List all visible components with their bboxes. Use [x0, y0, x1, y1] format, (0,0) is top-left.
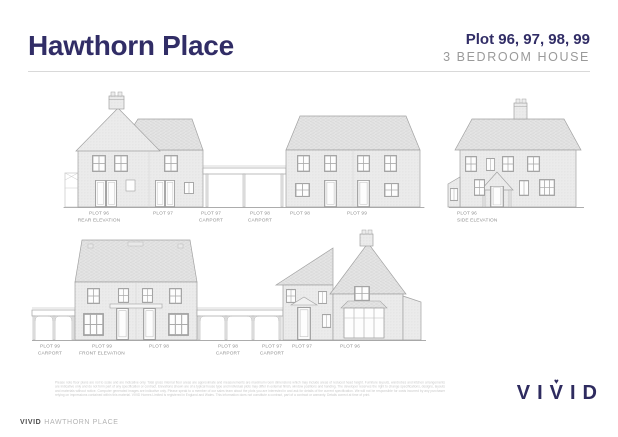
label-plot96-side: PLOT 96SIDE ELEVATION [457, 210, 557, 224]
front-elevation-plots-96-99 [32, 230, 426, 341]
vivid-logo: V I ♥V I D [517, 383, 597, 403]
footer-brand: VIVID [20, 419, 41, 426]
rear-elevation-plots-96-99 [64, 92, 424, 208]
logo-letter-with-heart: ♥V [550, 383, 563, 403]
logo-letter: I [570, 383, 576, 403]
footer-project: HAWTHORN PLACE [44, 419, 118, 426]
label-plot99-top: PLOT 99 [317, 210, 397, 217]
side-elevation-plot-96 [448, 99, 584, 208]
legal-disclaimer: Please note floor plans are not to scale… [55, 381, 445, 398]
label-plot98-bottom: PLOT 98 [119, 343, 199, 350]
footer-brand-line: VIVIDHAWTHORN PLACE [20, 419, 119, 426]
brochure-page: Hawthorn Place Plot 96, 97, 98, 99 3 BED… [0, 0, 618, 437]
label-plot96-bottom: PLOT 96 [310, 343, 390, 350]
logo-letter: D [583, 383, 597, 403]
heart-icon: ♥ [554, 378, 559, 386]
logo-letter: V [517, 383, 530, 403]
logo-letter: I [537, 383, 543, 403]
